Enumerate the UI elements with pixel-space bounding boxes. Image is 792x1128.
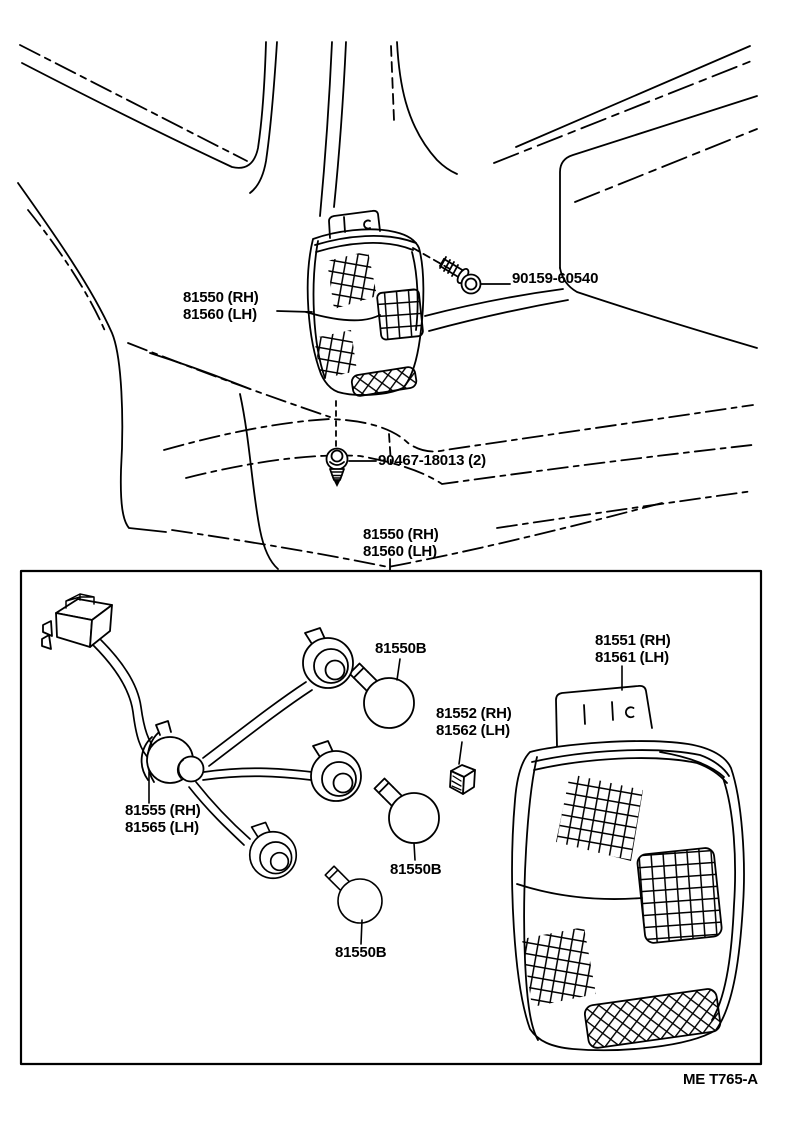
lens-hatch-lower <box>522 927 596 1007</box>
bulb-low-leader <box>361 920 362 944</box>
callout-box-assembly-lh: 81560 (LH) <box>363 543 437 560</box>
callout-bulb-mid-number: 81550B <box>390 861 441 878</box>
callout-lens-lh: 81561 (LH) <box>595 649 669 666</box>
bulb-mid-leader <box>414 843 415 860</box>
lamp-assy-leader <box>277 311 312 312</box>
tail-lamp-hatch-upper <box>327 251 377 309</box>
callout-lens-rh: 81551 (RH) <box>595 632 671 649</box>
window-edge-lines <box>20 42 277 193</box>
callout-clip: 90467-18013 (2) <box>378 452 486 469</box>
figure-code: ME T765-A <box>683 1071 758 1088</box>
bulb-3 <box>325 866 382 923</box>
license-plate-recess <box>560 96 757 348</box>
figure-code-text: ME T765-A <box>683 1071 758 1088</box>
socket-leader <box>459 742 462 764</box>
callout-socket: 81552 (RH)81562 (LH) <box>436 705 512 739</box>
callout-bulb-low-number: 81550B <box>335 944 386 961</box>
callout-bulb-top: 81550B <box>375 640 426 657</box>
tail-lamp-tab <box>329 211 380 238</box>
lens-hatch-side <box>637 847 723 944</box>
tail-lamp-hatch-side <box>377 289 424 340</box>
callout-lens: 81551 (RH)81561 (LH) <box>595 632 671 666</box>
callout-cord-lh: 81565 (LH) <box>125 819 199 836</box>
callout-socket-rh: 81552 (RH) <box>436 705 512 722</box>
callout-screw: 90159-60540 <box>512 270 598 287</box>
bulb-1 <box>350 664 415 729</box>
callout-lamp-assembly-rh: 81550 (RH) <box>183 289 259 306</box>
callout-bulb-low: 81550B <box>335 944 386 961</box>
bulb-socket-2 <box>311 741 361 801</box>
callout-socket-lh: 81562 (LH) <box>436 722 510 739</box>
vehicle-rear-view <box>18 42 757 569</box>
lens-reflector-strip <box>584 988 722 1049</box>
lens-tab <box>556 686 652 746</box>
harness-socket-main <box>142 721 204 783</box>
callout-cord: 81555 (RH)81565 (LH) <box>125 802 201 836</box>
callout-bulb-top-number: 81550B <box>375 640 426 657</box>
callout-box-assembly: 81550 (RH)81560 (LH) <box>363 526 439 560</box>
bulb-socket-1 <box>303 628 353 688</box>
callout-bulb-mid: 81550B <box>390 861 441 878</box>
callout-lamp-assembly-lh: 81560 (LH) <box>183 306 257 323</box>
callout-clip-number: 90467-18013 (2) <box>378 452 486 469</box>
liftgate-edge-lines <box>320 42 457 216</box>
callout-cord-rh: 81555 (RH) <box>125 802 201 819</box>
diagram-canvas <box>0 0 792 1128</box>
socket-housing-small <box>450 765 475 794</box>
bulb-2 <box>375 779 440 844</box>
lens-hatch-upper <box>556 774 643 861</box>
bulb-socket-3 <box>250 822 297 878</box>
wheel-arch-lines <box>18 183 166 532</box>
callout-box-assembly-rh: 81550 (RH) <box>363 526 439 543</box>
parts-diagram-page: 81550 (RH)81560 (LH) 90159-60540 90467-1… <box>0 0 792 1128</box>
bulb-top-leader <box>397 659 400 680</box>
tail-lamp-assembly-top <box>306 211 423 397</box>
screw-icon <box>413 248 510 294</box>
callout-lamp-assembly: 81550 (RH)81560 (LH) <box>183 289 259 323</box>
clip-icon <box>327 401 377 487</box>
lens-assembly <box>512 686 744 1050</box>
callout-screw-number: 90159-60540 <box>512 270 598 287</box>
